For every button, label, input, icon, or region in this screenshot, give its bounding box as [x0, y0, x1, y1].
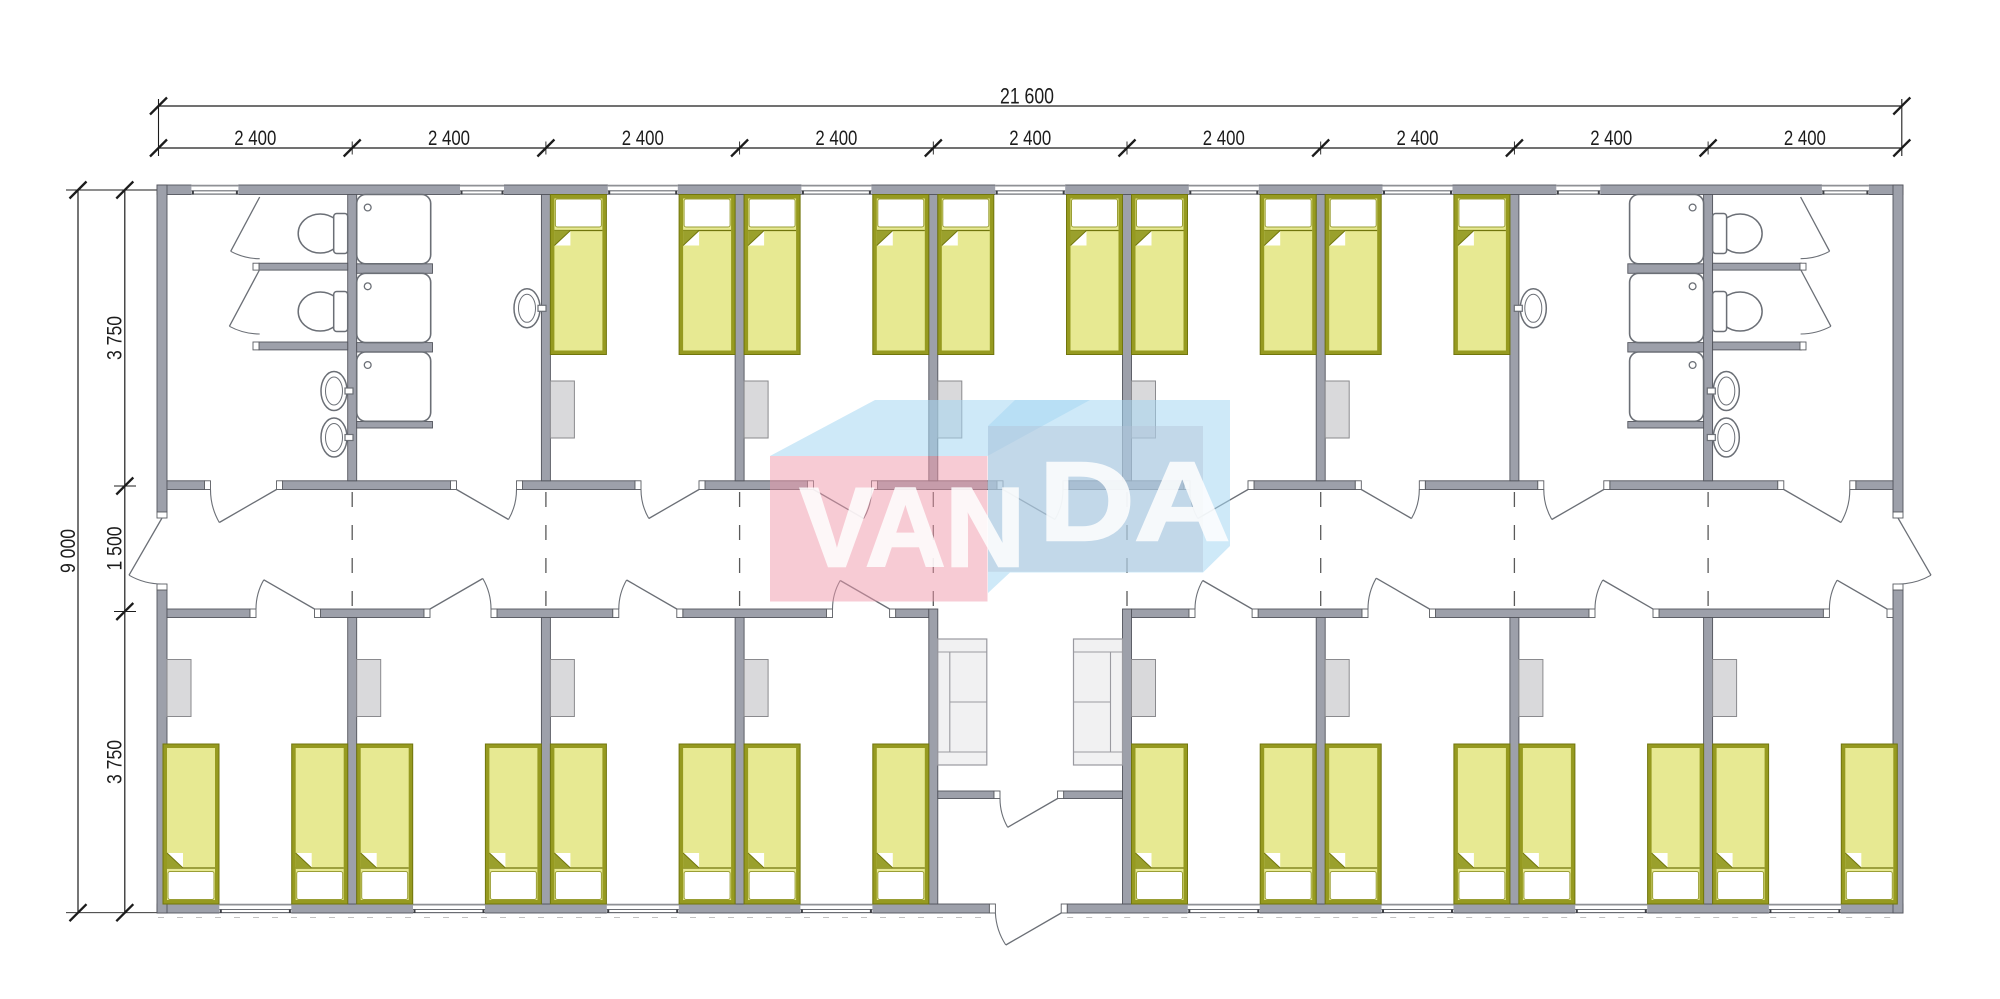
svg-text:2 400: 2 400 [1590, 126, 1632, 150]
svg-text:2 400: 2 400 [1784, 126, 1826, 150]
svg-text:2 400: 2 400 [1009, 126, 1051, 150]
svg-text:2 400: 2 400 [234, 126, 276, 150]
svg-text:2 400: 2 400 [1203, 126, 1245, 150]
svg-text:3 750: 3 750 [103, 740, 127, 784]
svg-text:3 750: 3 750 [103, 316, 127, 360]
svg-text:21 600: 21 600 [1000, 84, 1054, 109]
svg-text:2 400: 2 400 [1397, 126, 1439, 150]
svg-text:2 400: 2 400 [622, 126, 664, 150]
svg-text:9 000: 9 000 [56, 529, 80, 573]
svg-text:1 500: 1 500 [103, 526, 127, 570]
svg-text:2 400: 2 400 [815, 126, 857, 150]
svg-text:2 400: 2 400 [428, 126, 470, 150]
svg-text:DA: DA [1039, 439, 1230, 564]
svg-text:VAN: VAN [800, 465, 1025, 590]
